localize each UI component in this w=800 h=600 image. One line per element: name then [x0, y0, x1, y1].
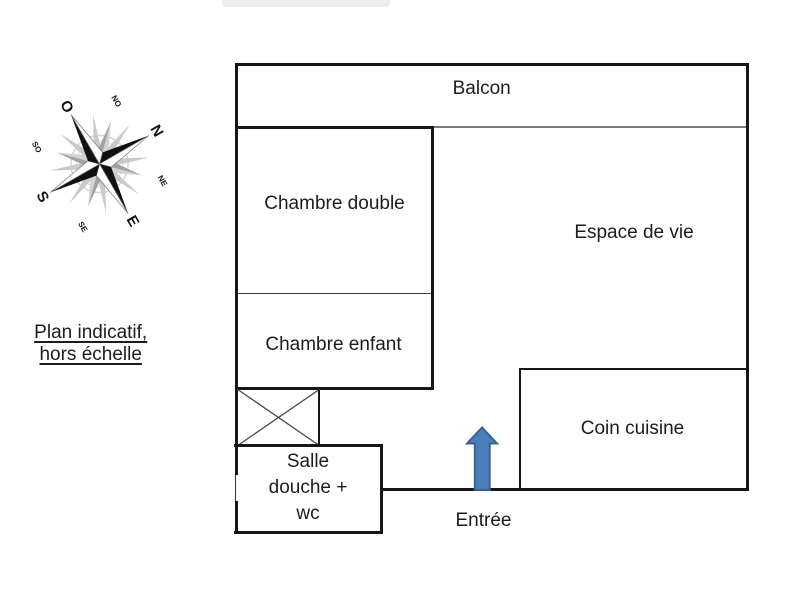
svg-text:S: S — [32, 188, 52, 205]
svg-text:NO: NO — [109, 94, 123, 109]
svg-text:NE: NE — [156, 174, 170, 189]
svg-text:SO: SO — [30, 140, 44, 155]
svg-text:SE: SE — [76, 220, 89, 234]
svg-text:E: E — [123, 213, 143, 230]
svg-text:N: N — [147, 122, 167, 140]
svg-text:O: O — [56, 98, 77, 117]
